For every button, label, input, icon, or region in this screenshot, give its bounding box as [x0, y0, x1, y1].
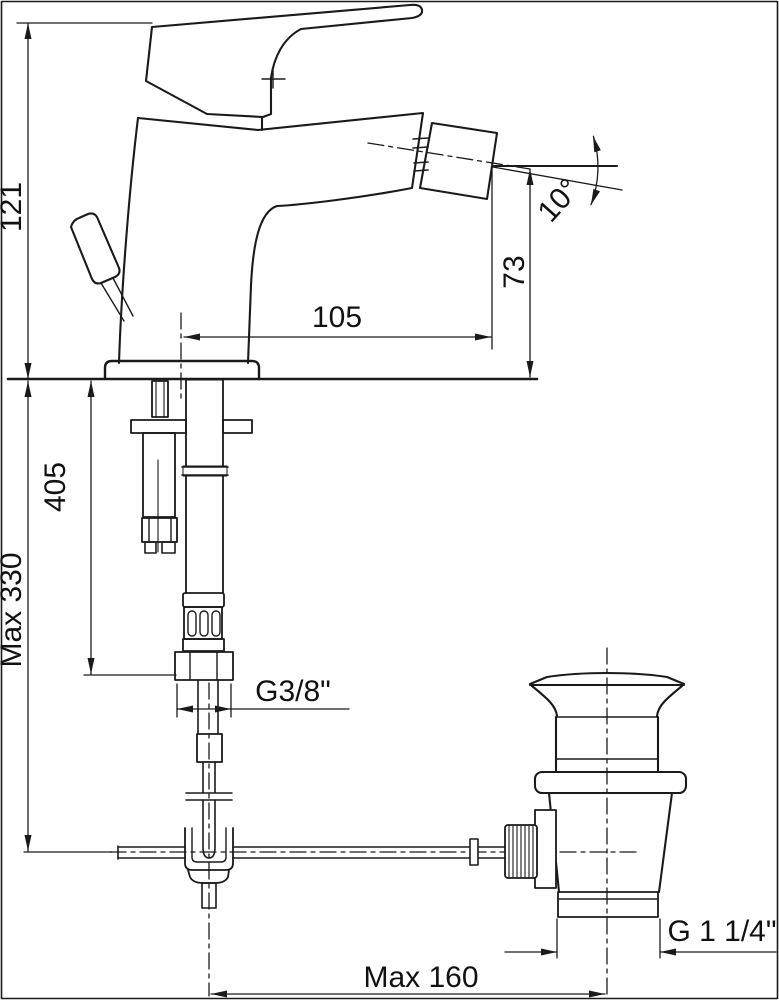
hose-collar	[183, 639, 224, 651]
dimension-max-160: Max 160	[211, 961, 605, 998]
supply-hose	[175, 380, 233, 680]
spout-top-edge	[258, 113, 423, 188]
pop-up-rod	[185, 680, 233, 996]
aerator	[420, 123, 497, 199]
arrowhead	[475, 334, 491, 341]
mounting-nut-flats	[149, 518, 171, 542]
g114-thread-label: G 1 1/4"	[667, 915, 776, 948]
hose-braid	[186, 380, 223, 593]
dim-121-label: 121	[0, 182, 28, 232]
dimension-g114-thread: G 1 1/4"	[505, 915, 777, 958]
arrowhead	[25, 381, 32, 397]
arrowhead	[88, 381, 95, 397]
arrowhead	[25, 835, 32, 851]
mounting-nut	[142, 518, 177, 542]
bidet-mixer-technical-drawing: 121 Max 330 405 105 73 10°	[0, 0, 779, 1000]
mounting-sleeve	[143, 433, 175, 517]
hose-nut-flats	[190, 652, 217, 680]
dimension-105: 105	[181, 167, 492, 399]
faucet-above-deck	[71, 5, 530, 363]
dim-73-label: 73	[498, 255, 531, 288]
arrowhead	[660, 949, 676, 956]
drain-taper-body	[549, 793, 672, 892]
arrowhead	[211, 991, 227, 998]
hose-hex-nut	[175, 652, 233, 680]
washer-plate-left	[131, 420, 186, 433]
arrowhead	[527, 169, 534, 185]
nut-tab-left	[145, 542, 156, 553]
dimension-405: 405	[39, 381, 176, 675]
ext-lines	[557, 919, 660, 958]
arrowhead	[591, 189, 600, 205]
arrowhead	[25, 23, 32, 39]
arrowhead	[177, 706, 193, 713]
technical-drawing-page: 121 Max 330 405 105 73 10°	[0, 0, 779, 1000]
dim-max-160-label: Max 160	[363, 961, 478, 994]
knurl-ridges	[509, 826, 533, 877]
dim-max-330-label: Max 330	[0, 552, 28, 667]
drain-assembly	[505, 648, 686, 998]
stud-thread-lines	[156, 381, 164, 417]
rod-entry-boss	[535, 810, 556, 888]
arrowhead	[25, 363, 32, 379]
arrowhead	[215, 706, 231, 713]
arrowhead	[589, 991, 605, 998]
cartridge-seam	[138, 118, 262, 130]
rod-stop-collar	[470, 839, 478, 865]
arrowhead	[184, 334, 200, 341]
side-lever	[71, 213, 120, 283]
hose-ferrule	[183, 593, 224, 607]
handle-lever	[146, 5, 422, 117]
dim-405-label: 405	[39, 462, 72, 512]
arrowhead	[593, 136, 601, 152]
corrugation-slot	[212, 611, 220, 636]
washer-plate-right	[223, 420, 252, 433]
angle-10-label: 10°	[531, 173, 586, 229]
threaded-stud	[152, 381, 168, 417]
corrugation-slot	[188, 611, 196, 636]
dim-line	[84, 381, 176, 675]
arrowhead	[541, 949, 557, 956]
horizontal-rod	[110, 839, 640, 865]
g38-thread-label: G3/8"	[255, 675, 331, 708]
arrowhead	[88, 658, 95, 674]
ext-lines	[177, 684, 231, 717]
dimension-g38-thread: G3/8"	[177, 675, 349, 717]
dimension-max-330: Max 330	[0, 381, 112, 852]
arrowhead	[527, 361, 534, 377]
nut-tab-right	[162, 542, 175, 553]
side-lever-stem	[101, 278, 133, 321]
dimension-73: 73	[498, 169, 534, 377]
drain-flange	[535, 772, 686, 793]
escutcheon-base	[105, 361, 259, 379]
body-left-edge	[119, 118, 138, 363]
handle-center-mark	[262, 70, 285, 88]
hose-walls	[186, 380, 223, 593]
dim-line	[24, 381, 112, 852]
drain-thread-section	[558, 892, 658, 917]
deck	[8, 361, 537, 379]
dim-105-label: 105	[312, 301, 362, 334]
dimension-angle-10: 10°	[493, 136, 622, 229]
corrugation-slot	[200, 611, 208, 636]
